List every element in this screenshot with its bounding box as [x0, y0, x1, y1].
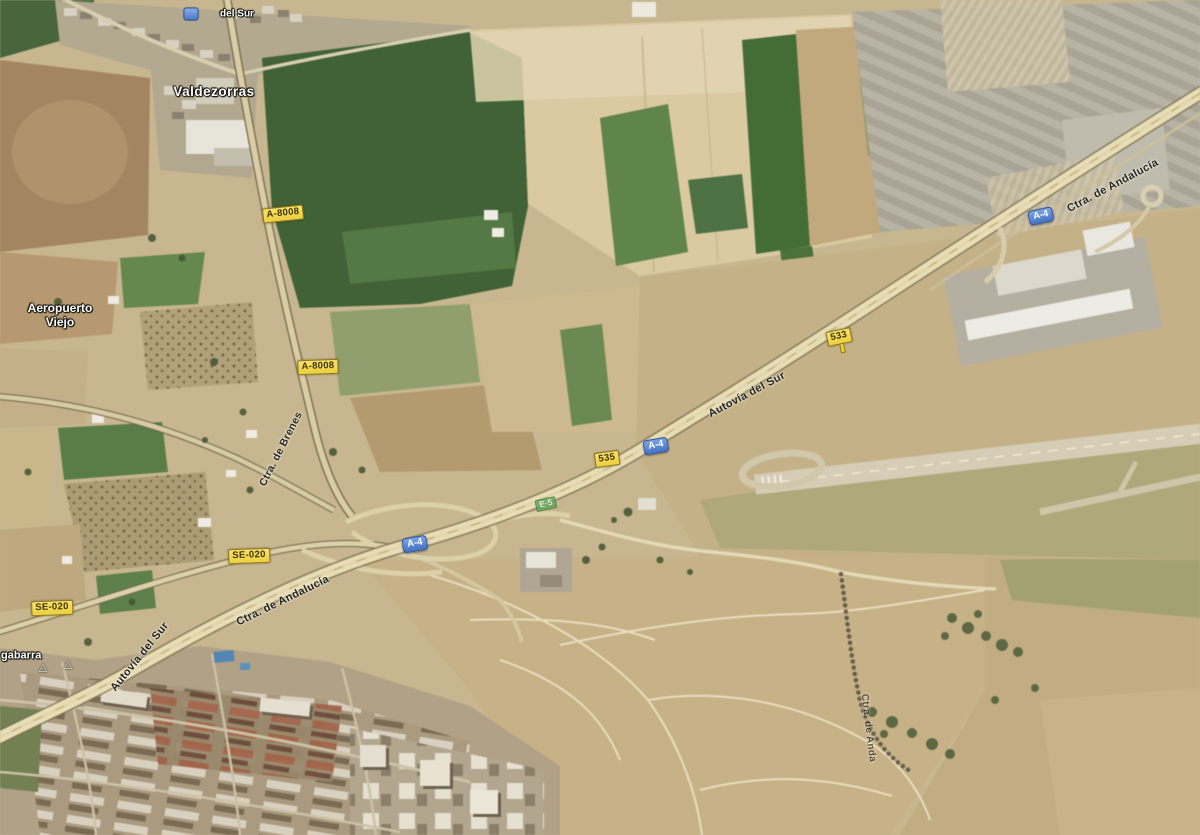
- road-badge-e5: E-5: [534, 496, 557, 512]
- road-badge-a8008-south: A-8008: [297, 359, 338, 375]
- warning-triangle-icon: △: [64, 659, 72, 672]
- place-label-aeropuerto-viejo-line1: Aeropuerto: [28, 302, 93, 316]
- road-badge-a8008-north: A-8008: [262, 204, 304, 223]
- road-badge-a4-mid: A-4: [642, 436, 670, 455]
- road-label-ctra-de-brenes: Ctra. de Brenes: [257, 410, 305, 489]
- road-badge-se020-east: SE-020: [228, 548, 270, 564]
- place-label-aeropuerto-viejo-line2: Viejo: [28, 316, 93, 330]
- road-label-vereda: Ctra. de Anda: [858, 693, 878, 762]
- km-badge-535: 535: [594, 450, 621, 468]
- road-label-autovia-del-sur-b: Autovía del Sur: [108, 620, 171, 694]
- place-label-del-sur: del Sur: [220, 8, 254, 20]
- warning-triangle-icon: △: [39, 662, 47, 675]
- road-label-ctra-andalucia-sw: Ctra. de Andalucía: [235, 573, 332, 629]
- road-badge-a4-sw: A-4: [401, 535, 428, 554]
- place-label-gabarra: gabarra: [1, 650, 41, 663]
- place-label-valdezorras: Valdezorras: [173, 84, 254, 100]
- road-shield-icon: [184, 8, 199, 21]
- km-badge-533: 533: [825, 327, 852, 347]
- road-label-autovia-del-sur-a: Autovía del Sur: [706, 369, 787, 420]
- road-badge-a4-ne: A-4: [1027, 206, 1055, 226]
- map-viewport[interactable]: del Sur Valdezorras A-8008 Aeropuerto Vi…: [0, 0, 1200, 835]
- road-badge-se020-west: SE-020: [31, 600, 73, 616]
- road-label-ctra-andalucia-ne: Ctra. de Andalucía: [1065, 157, 1161, 216]
